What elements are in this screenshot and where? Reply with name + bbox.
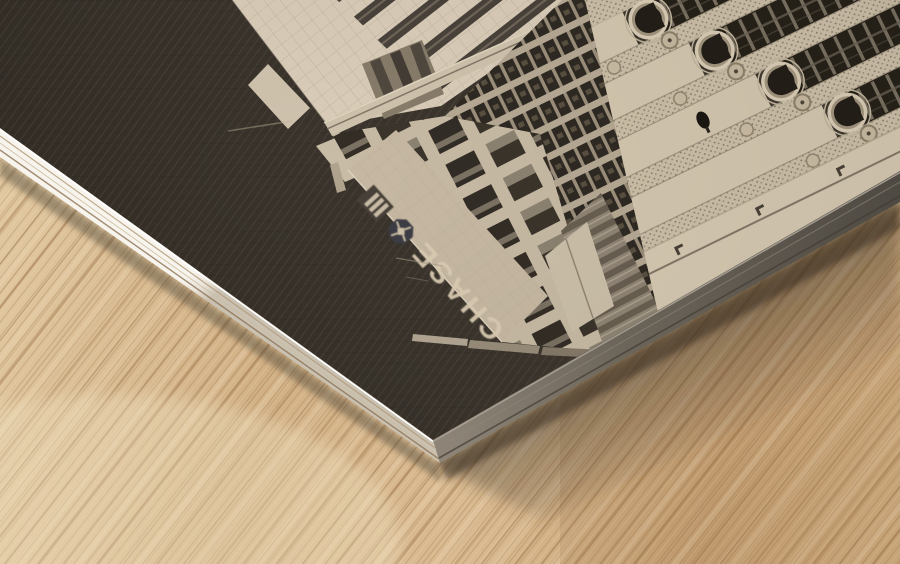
wood-print-mockup: CHASE [0,0,900,564]
product-photo: CHASE [0,0,900,564]
